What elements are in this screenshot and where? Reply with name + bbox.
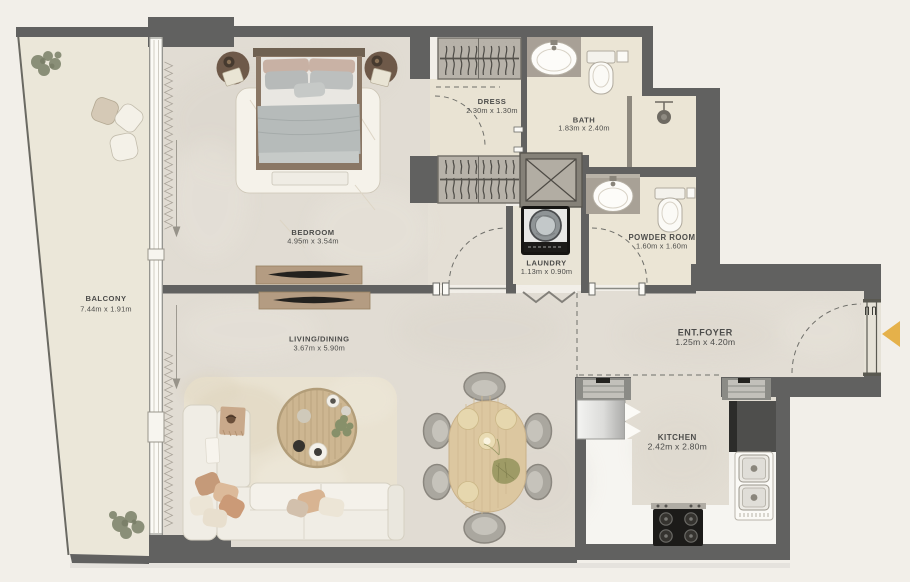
svg-text:1.13m x 0.90m: 1.13m x 0.90m — [521, 267, 572, 276]
svg-text:ENT.FOYER: ENT.FOYER — [678, 328, 733, 338]
svg-text:1.60m x 1.60m: 1.60m x 1.60m — [636, 242, 687, 251]
svg-text:2.30m x 1.30m: 2.30m x 1.30m — [466, 106, 517, 115]
svg-text:BALCONY: BALCONY — [85, 294, 126, 303]
svg-text:DRESS: DRESS — [478, 97, 507, 106]
svg-text:3.67m x 5.90m: 3.67m x 5.90m — [294, 343, 345, 352]
svg-text:LIVING/DINING: LIVING/DINING — [289, 334, 350, 343]
svg-text:1.25m x 4.20m: 1.25m x 4.20m — [675, 337, 735, 347]
svg-text:7.44m x 1.91m: 7.44m x 1.91m — [80, 305, 131, 314]
svg-text:KITCHEN: KITCHEN — [658, 433, 697, 442]
svg-text:1.83m x 2.40m: 1.83m x 2.40m — [558, 124, 609, 133]
svg-text:4.95m x 3.54m: 4.95m x 3.54m — [287, 237, 338, 246]
svg-text:2.42m x 2.80m: 2.42m x 2.80m — [648, 442, 707, 452]
